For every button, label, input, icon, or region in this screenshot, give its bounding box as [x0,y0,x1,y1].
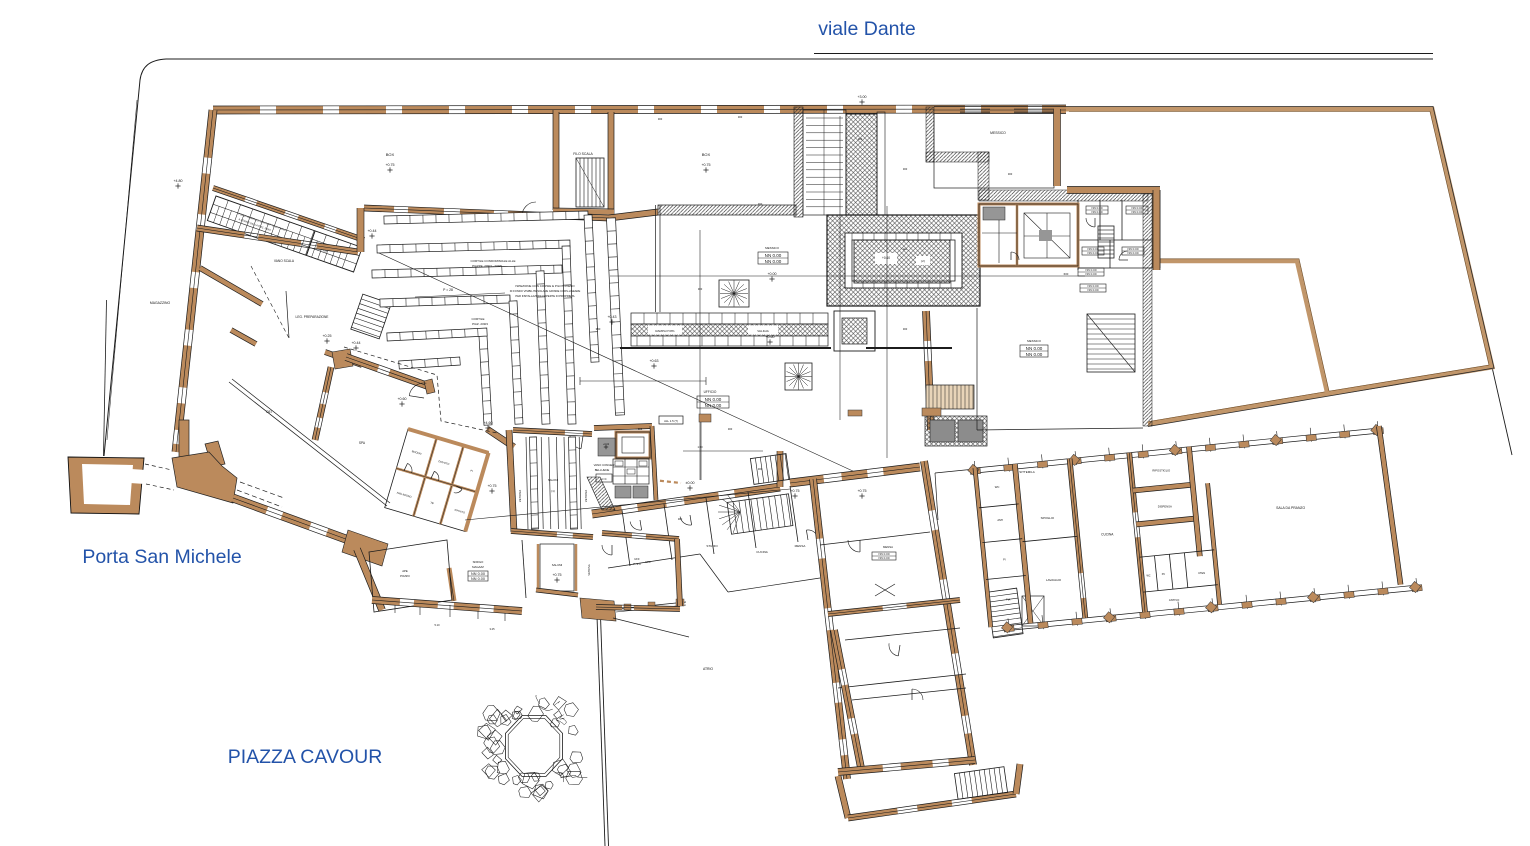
svg-text:VANO CONGER: VANO CONGER [594,463,615,467]
svg-text:PC: PC [1162,573,1166,576]
svg-text:ISPEZIONE CON CORSIE E PILOTI: ISPEZIONE CON CORSIE E PILOTI PIENO [515,284,575,288]
svg-text:SFRIGO: SFRIGO [473,560,485,564]
svg-text:1.50: 1.50 [697,445,703,449]
svg-text:+0.75: +0.75 [790,489,799,493]
svg-text:UFF: UFF [634,557,640,561]
svg-text:+0.44: +0.44 [367,229,376,233]
svg-text:300: 300 [758,202,763,206]
svg-text:+0.75: +0.75 [487,484,496,488]
svg-text:VETRINA: VETRINA [587,564,591,576]
svg-text:+0.75: +0.75 [701,163,710,167]
svg-text:DI FONDO VISIBILITA SOLARE GRI: DI FONDO VISIBILITA SOLARE GRINDE CORS-L… [510,289,581,293]
svg-text:PER INSTALLAZIONI COPERTE DI P: PER INSTALLAZIONI COPERTE DI PROPRIETA [515,294,574,298]
svg-text:NN 0.00: NN 0.00 [705,403,722,408]
svg-text:300: 300 [698,287,703,291]
svg-text:ANTI: ANTI [997,518,1003,522]
svg-text:300: 300 [903,327,908,331]
svg-text:POZZO: POZZO [400,574,410,578]
svg-text:VETRINA: VETRINA [518,490,522,502]
svg-text:NN 0.00: NN 0.00 [765,253,782,258]
svg-text:CORTILE CONDOMINIALE ALLE: CORTILE CONDOMINIALE ALLE [471,259,516,263]
svg-text:DISPENSA: DISPENSA [1158,505,1172,509]
svg-text:SALUMI: SALUMI [552,563,563,567]
svg-text:+4.80: +4.80 [173,179,182,183]
svg-text:NN 0.00: NN 0.00 [1026,352,1043,357]
svg-text:WC: WC [1147,574,1151,577]
svg-text:RIPOSTIGLIO: RIPOSTIGLIO [1152,469,1171,473]
svg-text:CUCINA: CUCINA [1101,532,1114,536]
svg-text:APE: APE [402,569,408,573]
svg-text:SPOGLIO: SPOGLIO [1041,516,1055,520]
svg-text:NN 0.00: NN 0.00 [1131,210,1142,214]
svg-text:CORTILE: CORTILE [472,317,485,321]
svg-text:SALONI: SALONI [548,478,558,482]
svg-text:600: 600 [1064,272,1069,276]
svg-text:MESSICO: MESSICO [765,246,780,250]
svg-text:NN 0.00: NN 0.00 [705,397,722,402]
svg-text:+0.00: +0.00 [767,272,776,276]
svg-text:+0.75: +0.75 [552,573,561,577]
svg-text:(1): (1) [551,489,554,493]
svg-text:NN 0.00: NN 0.00 [1091,210,1102,214]
svg-text:+0.60: +0.60 [882,256,890,260]
svg-text:MESSICO: MESSICO [1027,339,1042,343]
svg-text:MESSICO: MESSICO [990,131,1006,135]
svg-text:C=C: C=C [601,477,606,481]
svg-text:NN 0.00: NN 0.00 [1127,251,1138,255]
svg-text:VETRINA: VETRINA [584,490,588,502]
svg-text:+0.44: +0.44 [351,341,360,345]
svg-text:350: 350 [596,327,601,331]
svg-text:FIA: FIA [1006,597,1010,601]
svg-text:+0.75: +0.75 [385,163,394,167]
svg-text:NN 0.00: NN 0.00 [1087,288,1098,292]
svg-text:300: 300 [858,137,863,141]
svg-text:+0.02: +0.02 [603,443,610,446]
svg-text:UFFICIO: UFFICIO [704,390,717,394]
svg-text:300: 300 [728,427,733,431]
svg-text:P = 28: P = 28 [443,288,453,292]
svg-text:+0.43: +0.43 [607,315,616,319]
svg-text:PIAZ. 209/3: PIAZ. 209/3 [472,322,488,326]
svg-text:ALL 1.5 (?): ALL 1.5 (?) [664,419,678,423]
svg-text:PIAZZE. 209/3 - 209/5: PIAZZE. 209/3 - 209/5 [472,264,502,268]
svg-text:+3.00: +3.00 [857,95,866,99]
svg-text:NN 0.00: NN 0.00 [1085,272,1096,276]
svg-text:PIAZZA CAVOUR: PIAZZA CAVOUR [228,746,383,768]
svg-text:300: 300 [658,117,663,121]
svg-text:viale Dante: viale Dante [818,18,916,40]
svg-text:WC: WC [995,485,1000,489]
svg-text:300: 300 [1008,172,1013,176]
svg-text:UTEN: UTEN [1198,571,1205,575]
svg-text:NN 0.00: NN 0.00 [878,556,889,560]
svg-text:BELLUENE: BELLUENE [595,468,610,472]
svg-text:+0.60: +0.60 [765,335,774,339]
svg-text:300: 300 [638,427,643,431]
svg-text:FILO SCALA: FILO SCALA [573,152,593,156]
svg-text:NN 0.00: NN 0.00 [765,259,782,264]
svg-text:Porta San Michele: Porta San Michele [82,546,241,568]
svg-text:300: 300 [758,467,763,471]
svg-text:UFF: UFF [645,560,651,564]
svg-text:+0.60: +0.60 [397,397,406,401]
svg-text:SITTEMILA: SITTEMILA [1019,470,1035,474]
svg-text:MENSA: MENSA [883,545,893,549]
svg-text:SALA DA PRANZO: SALA DA PRANZO [1276,506,1305,510]
svg-text:3.25: 3.25 [489,627,495,631]
svg-text:300: 300 [738,115,743,119]
svg-text:LEG. PREPARAZIONE: LEG. PREPARAZIONE [296,315,329,319]
svg-text:NN 0.00: NN 0.00 [1087,251,1098,255]
svg-text:RAMPA P=8%: RAMPA P=8% [655,329,675,333]
svg-text:SPA: SPA [359,441,366,445]
svg-text:MENSA: MENSA [795,544,806,548]
svg-text:NN 0.00: NN 0.00 [471,572,485,576]
svg-text:VALIGIA: VALIGIA [757,329,768,333]
svg-text:tav.: tav. [903,247,908,251]
svg-text:MAGAZZINO: MAGAZZINO [150,301,171,305]
svg-text:+4.60: +4.60 [483,421,492,425]
svg-text:LAVAGGIO: LAVAGGIO [1046,578,1062,582]
svg-text:+0.25: +0.25 [322,334,331,338]
svg-text:+0.63: +0.63 [649,359,658,363]
svg-text:P=2.0: P=2.0 [633,562,641,566]
svg-text:STUDIO: STUDIO [706,544,718,548]
svg-text:ATRIO: ATRIO [703,667,713,671]
svg-text:MAGAZZ: MAGAZZ [472,565,484,569]
svg-text:VANO SCALA: VANO SCALA [274,259,295,263]
svg-text:BOX: BOX [702,152,711,157]
svg-text:+0.75: +0.75 [857,489,866,493]
svg-text:300: 300 [678,517,683,521]
svg-text:ANTIVO: ANTIVO [1169,598,1180,602]
svg-text:(2): (2) [921,259,925,263]
svg-text:NN 0.00: NN 0.00 [1026,346,1043,351]
svg-text:PI: PI [1003,558,1006,562]
svg-text:BOX: BOX [386,152,395,157]
svg-text:±0.00: ±0.00 [686,481,695,485]
svg-text:NN 0.00: NN 0.00 [471,577,485,581]
svg-text:5.10: 5.10 [434,623,440,627]
svg-text:CUCINA: CUCINA [756,550,768,554]
svg-text:300: 300 [903,167,908,171]
